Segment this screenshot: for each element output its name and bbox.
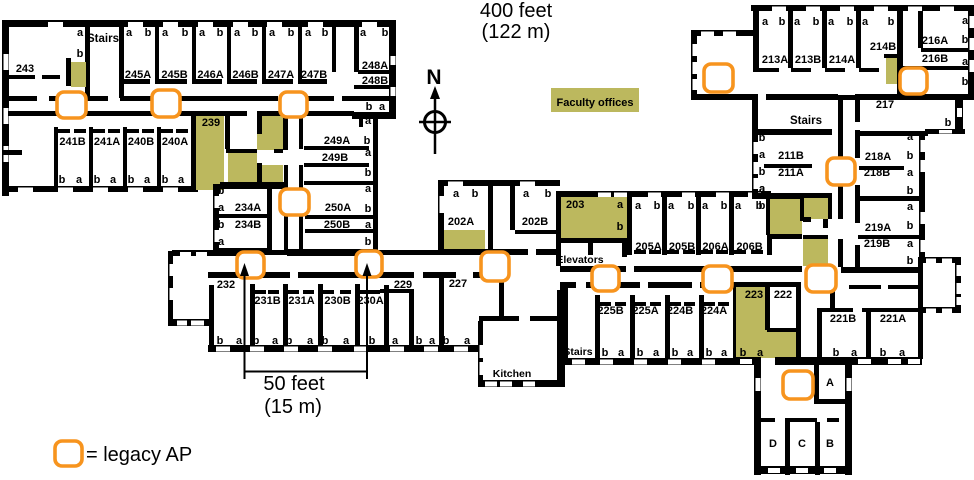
svg-text:241B: 241B (59, 136, 85, 148)
svg-text:b: b (128, 174, 135, 186)
svg-text:a: a (762, 16, 769, 28)
svg-text:230A: 230A (357, 295, 383, 307)
svg-text:a: a (305, 27, 312, 39)
svg-text:a: a (269, 27, 276, 39)
svg-text:249A: 249A (324, 135, 350, 147)
svg-text:b: b (472, 188, 479, 200)
svg-text:b: b (218, 185, 225, 197)
svg-text:b: b (322, 27, 329, 39)
svg-text:a: a (907, 201, 914, 213)
svg-text:a: a (360, 27, 367, 39)
svg-text:b: b (217, 27, 224, 39)
svg-text:211A: 211A (778, 167, 804, 179)
svg-text:b: b (962, 76, 969, 88)
svg-text:b: b (907, 185, 914, 197)
svg-text:b: b (907, 255, 914, 267)
svg-text:214A: 214A (829, 54, 855, 66)
svg-text:Elevators: Elevators (556, 254, 603, 266)
svg-text:b: b (382, 27, 389, 39)
svg-text:a: a (199, 27, 206, 39)
svg-text:(122 m): (122 m) (482, 21, 551, 43)
svg-text:223: 223 (745, 289, 763, 301)
svg-text:a: a (144, 174, 151, 186)
svg-text:211B: 211B (778, 150, 804, 162)
svg-text:A: A (826, 377, 834, 389)
svg-text:224A: 224A (701, 305, 727, 317)
svg-text:b: b (365, 236, 372, 248)
svg-text:b: b (365, 167, 372, 179)
svg-text:b: b (706, 347, 713, 359)
svg-text:217: 217 (876, 99, 894, 111)
svg-text:232: 232 (217, 279, 235, 291)
svg-text:b: b (945, 117, 952, 129)
svg-text:= legacy AP: = legacy AP (86, 444, 192, 466)
svg-text:D: D (769, 438, 777, 450)
svg-text:b: b (688, 200, 695, 212)
svg-text:219A: 219A (865, 222, 891, 234)
svg-text:219B: 219B (864, 238, 890, 250)
svg-text:a: a (907, 167, 914, 179)
svg-text:b: b (145, 27, 152, 39)
svg-text:b: b (779, 16, 786, 28)
svg-text:a: a (523, 188, 530, 200)
svg-text:b: b (77, 48, 84, 60)
svg-text:b: b (617, 221, 624, 233)
svg-text:b: b (672, 347, 679, 359)
svg-text:Faculty offices: Faculty offices (556, 97, 633, 109)
svg-text:a: a (702, 200, 709, 212)
svg-text:227: 227 (449, 278, 467, 290)
svg-text:b: b (162, 174, 169, 186)
svg-text:243: 243 (16, 63, 34, 75)
svg-text:a: a (759, 183, 766, 195)
svg-text:213A: 213A (762, 54, 788, 66)
svg-text:224B: 224B (667, 305, 693, 317)
svg-text:a: a (218, 202, 225, 214)
svg-text:b: b (813, 16, 820, 28)
svg-text:231B: 231B (254, 295, 280, 307)
svg-text:Stairs: Stairs (790, 115, 822, 127)
svg-text:b: b (759, 132, 766, 144)
svg-text:a: a (234, 27, 241, 39)
svg-text:a: a (365, 147, 372, 159)
svg-text:a: a (617, 199, 624, 211)
svg-text:Stairs: Stairs (87, 33, 119, 45)
svg-text:b: b (365, 203, 372, 215)
svg-text:a: a (653, 347, 660, 359)
svg-text:b: b (59, 174, 66, 186)
svg-text:a: a (453, 188, 460, 200)
svg-text:b: b (218, 219, 225, 231)
svg-text:b: b (759, 200, 766, 212)
svg-text:a: a (962, 15, 969, 27)
svg-text:216B: 216B (922, 53, 948, 65)
svg-text:a: a (735, 200, 742, 212)
svg-text:a: a (77, 27, 84, 39)
svg-text:a: a (635, 200, 642, 212)
svg-text:b: b (288, 27, 295, 39)
svg-text:202A: 202A (448, 216, 474, 228)
svg-text:C: C (798, 438, 806, 450)
svg-text:a: a (862, 16, 869, 28)
svg-text:b: b (94, 174, 101, 186)
svg-text:a: a (907, 131, 914, 143)
svg-text:N: N (426, 66, 441, 89)
svg-text:a: a (76, 174, 83, 186)
svg-text:b: b (182, 27, 189, 39)
svg-text:a: a (687, 347, 694, 359)
svg-text:202B: 202B (522, 216, 548, 228)
svg-text:214B: 214B (870, 41, 896, 53)
svg-text:221A: 221A (880, 313, 906, 325)
svg-text:230B: 230B (324, 295, 350, 307)
svg-text:b: b (907, 220, 914, 232)
svg-text:234A: 234A (235, 202, 261, 214)
svg-text:b: b (366, 101, 373, 113)
svg-text:b: b (364, 135, 371, 147)
svg-text:b: b (654, 200, 661, 212)
svg-text:b: b (252, 27, 259, 39)
svg-text:a: a (162, 27, 169, 39)
svg-text:218A: 218A (865, 151, 891, 163)
svg-text:a: a (126, 27, 133, 39)
svg-text:b: b (962, 34, 969, 46)
svg-text:Kitchen: Kitchen (493, 368, 532, 380)
svg-text:b: b (637, 347, 644, 359)
svg-text:239: 239 (202, 117, 220, 129)
svg-text:B: B (826, 438, 834, 450)
svg-text:(15 m): (15 m) (264, 396, 322, 418)
svg-text:250A: 250A (325, 202, 351, 214)
svg-text:216A: 216A (922, 35, 948, 47)
svg-text:221B: 221B (830, 313, 856, 325)
svg-text:a: a (721, 347, 728, 359)
svg-text:b: b (602, 347, 609, 359)
svg-text:a: a (759, 149, 766, 161)
svg-text:a: a (668, 200, 675, 212)
svg-text:a: a (110, 174, 117, 186)
svg-text:a: a (794, 16, 801, 28)
svg-text:a: a (828, 16, 835, 28)
svg-text:400 feet: 400 feet (480, 0, 553, 22)
svg-text:a: a (365, 115, 372, 127)
svg-text:203: 203 (566, 199, 584, 211)
svg-text:218B: 218B (864, 167, 890, 179)
svg-text:a: a (218, 236, 225, 248)
svg-text:a: a (907, 238, 914, 250)
svg-text:213B: 213B (795, 54, 821, 66)
svg-text:249B: 249B (322, 152, 348, 164)
svg-text:225B: 225B (597, 305, 623, 317)
svg-text:222: 222 (774, 289, 792, 301)
svg-text:b: b (721, 200, 728, 212)
svg-text:a: a (962, 56, 969, 68)
svg-text:241A: 241A (94, 136, 120, 148)
svg-text:a: a (379, 101, 386, 113)
svg-text:234B: 234B (235, 219, 261, 231)
svg-text:b: b (907, 150, 914, 162)
svg-text:50 feet: 50 feet (263, 373, 325, 395)
svg-text:231A: 231A (288, 295, 314, 307)
svg-text:240A: 240A (162, 136, 188, 148)
svg-text:225A: 225A (632, 305, 658, 317)
svg-text:b: b (847, 16, 854, 28)
svg-text:240B: 240B (128, 136, 154, 148)
svg-text:a: a (178, 174, 185, 186)
svg-text:a: a (618, 347, 625, 359)
svg-text:b: b (888, 16, 895, 28)
svg-text:b: b (759, 166, 766, 178)
svg-text:b: b (545, 188, 552, 200)
